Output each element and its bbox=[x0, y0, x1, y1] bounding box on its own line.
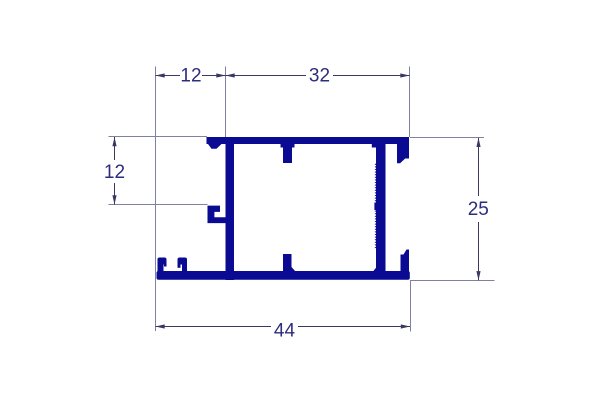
svg-text:12: 12 bbox=[104, 162, 125, 183]
svg-text:32: 32 bbox=[309, 65, 330, 86]
svg-text:12: 12 bbox=[180, 65, 201, 86]
svg-text:44: 44 bbox=[274, 321, 296, 342]
svg-text:25: 25 bbox=[468, 199, 489, 220]
